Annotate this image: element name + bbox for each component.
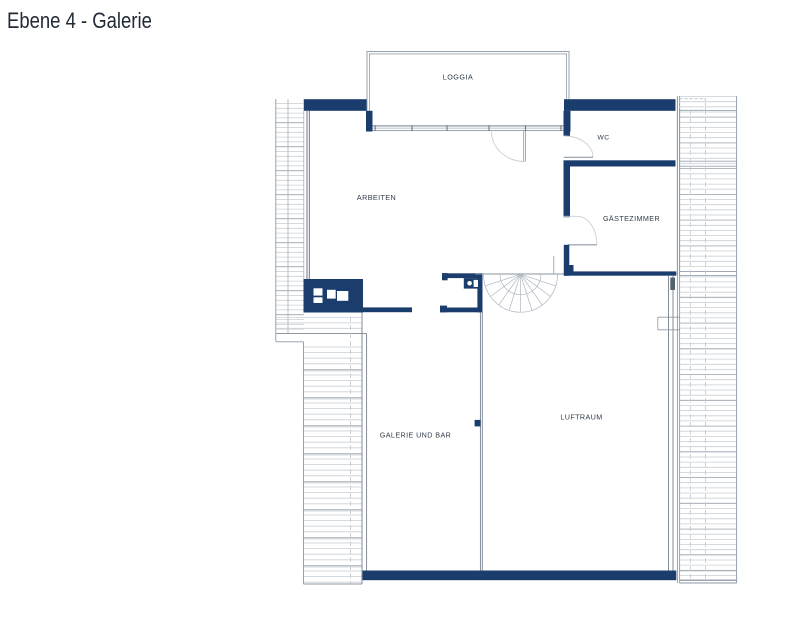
svg-text:LOGGIA: LOGGIA xyxy=(443,73,474,82)
svg-text:LUFTRAUM: LUFTRAUM xyxy=(560,412,602,421)
svg-text:WC: WC xyxy=(597,135,609,142)
svg-text:GÄSTEZIMMER: GÄSTEZIMMER xyxy=(603,214,660,223)
svg-text:ARBEITEN: ARBEITEN xyxy=(357,193,396,202)
svg-text:GALERIE UND BAR: GALERIE UND BAR xyxy=(380,430,452,439)
